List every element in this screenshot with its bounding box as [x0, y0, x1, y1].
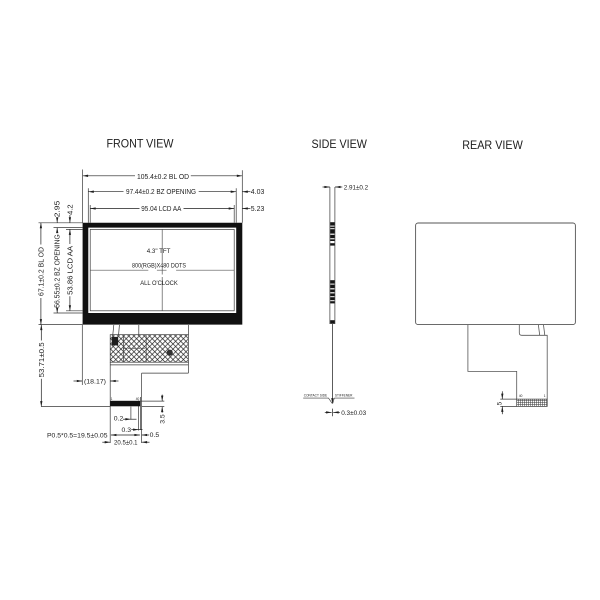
- svg-text:40: 40: [519, 394, 523, 398]
- svg-text:(18.17): (18.17): [84, 378, 106, 385]
- svg-text:4.2: 4.2: [67, 204, 74, 215]
- svg-text:1: 1: [111, 397, 113, 401]
- svg-text:5: 5: [498, 401, 504, 405]
- svg-text:56.55±0.2 BZ OPENING: 56.55±0.2 BZ OPENING: [55, 234, 62, 308]
- svg-text:FRONT VIEW: FRONT VIEW: [107, 138, 174, 150]
- svg-text:53.86 LCD AA: 53.86 LCD AA: [67, 246, 74, 295]
- svg-text:0.3±0.03: 0.3±0.03: [341, 410, 366, 417]
- svg-text:5.23: 5.23: [251, 206, 265, 213]
- svg-text:800(RGB)X480 DOTS: 800(RGB)X480 DOTS: [132, 263, 186, 270]
- svg-text:2.95: 2.95: [55, 201, 62, 218]
- svg-text:ALL O'CLOCK: ALL O'CLOCK: [140, 280, 178, 287]
- svg-text:40: 40: [136, 397, 140, 401]
- svg-text:1: 1: [544, 394, 546, 398]
- svg-text:4.03: 4.03: [251, 189, 265, 196]
- svg-text:0.5: 0.5: [150, 432, 160, 439]
- svg-text:0.3: 0.3: [122, 427, 132, 434]
- svg-text:53.71±0.5: 53.71±0.5: [39, 342, 46, 377]
- svg-text:REAR VIEW: REAR VIEW: [462, 140, 523, 152]
- svg-text:CONTACT SIDE: CONTACT SIDE: [304, 392, 328, 397]
- svg-text:0.2: 0.2: [114, 416, 124, 423]
- svg-text:105.4±0.2 BL OD: 105.4±0.2 BL OD: [137, 174, 189, 181]
- svg-text:STIFFENER: STIFFENER: [335, 392, 353, 397]
- svg-text:95.04 LCD AA: 95.04 LCD AA: [141, 206, 181, 213]
- svg-text:67.1±0.2 BL OD: 67.1±0.2 BL OD: [38, 247, 45, 296]
- svg-text:20.5±0.1: 20.5±0.1: [114, 440, 138, 447]
- svg-text:97.44±0.2 BZ OPENING: 97.44±0.2 BZ OPENING: [126, 189, 196, 196]
- svg-text:3.5: 3.5: [159, 414, 166, 424]
- svg-text:2.91±0.2: 2.91±0.2: [344, 185, 369, 192]
- svg-text:SIDE VIEW: SIDE VIEW: [311, 139, 367, 151]
- svg-text:P0.5*0.5=19.5±0.05: P0.5*0.5=19.5±0.05: [47, 432, 108, 439]
- svg-text:4.3" TFT: 4.3" TFT: [147, 248, 171, 255]
